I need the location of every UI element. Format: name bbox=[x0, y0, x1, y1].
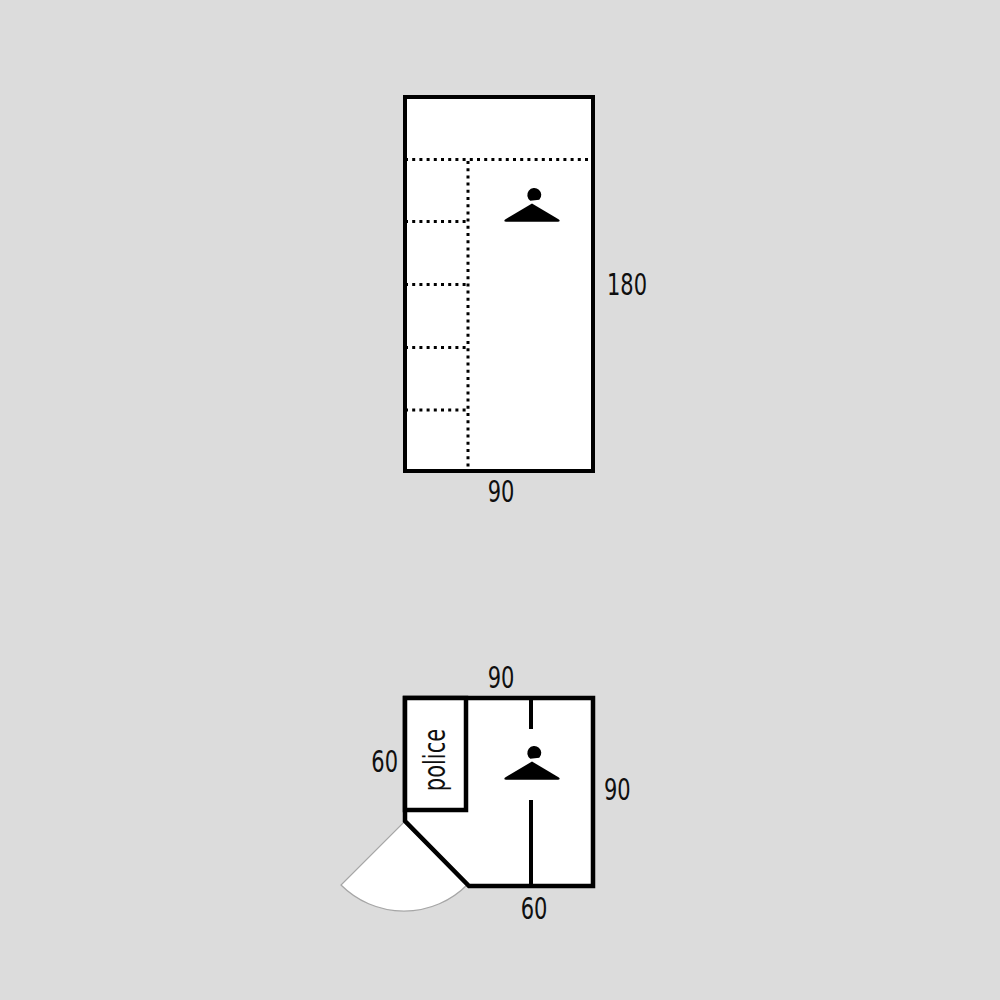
plan-view-top-width-label: 90 bbox=[488, 660, 515, 695]
front-view-width-label: 90 bbox=[488, 474, 515, 509]
plan-view: police 90 60 90 60 bbox=[341, 660, 631, 926]
front-view-height-label: 180 bbox=[607, 267, 647, 302]
plan-view-right-depth-label: 90 bbox=[604, 772, 631, 807]
compartment-label: police bbox=[417, 729, 452, 791]
front-view: 180 90 bbox=[405, 97, 647, 509]
plan-view-bottom-width-label: 60 bbox=[521, 891, 548, 926]
wardrobe-diagrams: 180 90 police 90 60 90 60 bbox=[0, 0, 1000, 1000]
plan-view-left-depth-label: 60 bbox=[371, 744, 398, 779]
front-view-outline bbox=[405, 97, 593, 471]
